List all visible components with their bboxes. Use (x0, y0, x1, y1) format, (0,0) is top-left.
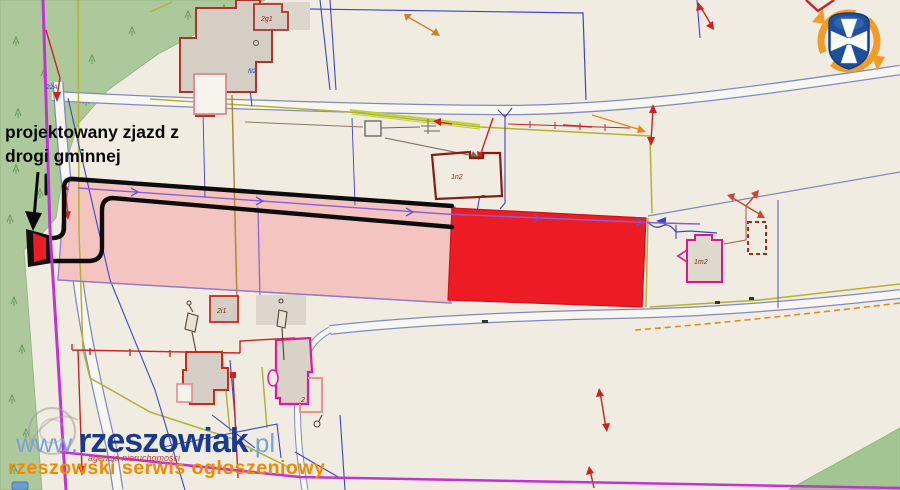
road-mark (715, 301, 720, 304)
road-mark (749, 297, 754, 300)
building-2 (276, 338, 312, 404)
taskbar-fragment (12, 482, 28, 490)
highlight-parcel[interactable] (448, 208, 646, 307)
cadastral-map-canvas[interactable]: 2g1 1n2 1m2 2i1 2 (0, 0, 900, 490)
utility-label: fil2 (248, 68, 257, 75)
building-label: 2i1 (216, 308, 226, 315)
building-annex (194, 74, 226, 114)
road-mark (482, 320, 488, 323)
building-label: 1m2 (694, 259, 708, 266)
annotation-line2: drogi gminnej (5, 146, 121, 166)
utility-label: 22A (45, 84, 58, 91)
watermark-tagline: rzeszowski serwis ogłoszeniowy (8, 457, 325, 479)
building-label: 2g1 (260, 16, 273, 23)
annotation-line1: projektowany zjazd z (5, 122, 179, 142)
building-label: 2 (300, 397, 305, 404)
building-label: 1n2 (451, 174, 463, 181)
